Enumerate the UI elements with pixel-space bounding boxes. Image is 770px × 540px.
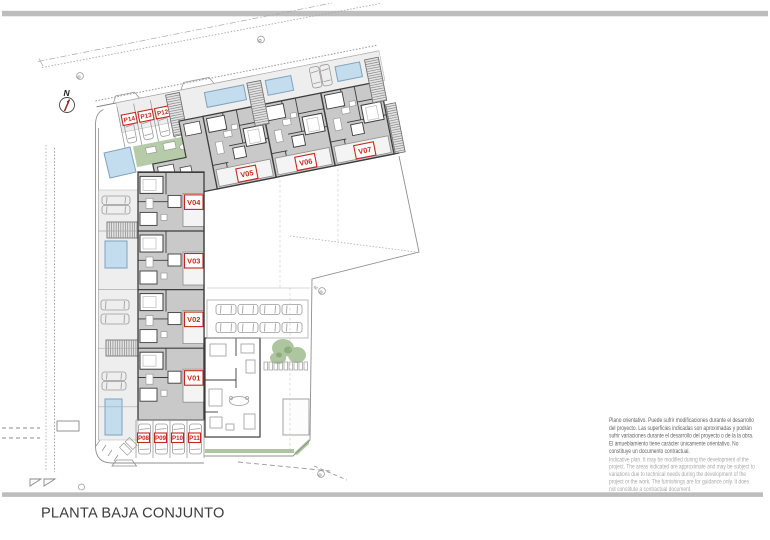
svg-text:project. The areas indicated a: project. The areas indicated are approxi… (609, 464, 755, 471)
svg-text:variations due to technical ne: variations due to technical needs during… (609, 472, 747, 479)
svg-text:sufrir variaciones durante el: sufrir variaciones durante el desarrollo… (609, 433, 754, 440)
svg-text:El amueblamiento tiene carácte: El amueblamiento tiene carácter únicamen… (609, 441, 739, 448)
svg-text:PLANTA BAJA CONJUNTO: PLANTA BAJA CONJUNTO (41, 506, 225, 522)
svg-text:P09: P09 (155, 435, 167, 442)
svg-text:P10: P10 (172, 435, 184, 442)
svg-text:project or the work. The furni: project or the work. The furnishings are… (609, 479, 749, 486)
svg-text:Plano orientativo. Puede sufri: Plano orientativo. Puede sufrir modifica… (609, 417, 754, 424)
svg-text:P08: P08 (138, 435, 150, 442)
svg-text:not constitute a contractual d: not constitute a contractual document. (609, 487, 692, 494)
svg-text:V01: V01 (187, 374, 200, 383)
svg-text:N: N (64, 88, 71, 98)
svg-text:P11: P11 (189, 435, 200, 442)
svg-text:V02: V02 (187, 315, 200, 324)
svg-text:V03: V03 (187, 256, 200, 265)
svg-text:V04: V04 (187, 198, 201, 207)
svg-text:Indicative plan. It may be mod: Indicative plan. It may be modified duri… (609, 457, 749, 464)
svg-text:constituye un documento contra: constituye un documento contractual. (609, 449, 690, 456)
svg-text:del proyecto. Las superficies: del proyecto. Las superficies indicadas … (609, 425, 752, 432)
